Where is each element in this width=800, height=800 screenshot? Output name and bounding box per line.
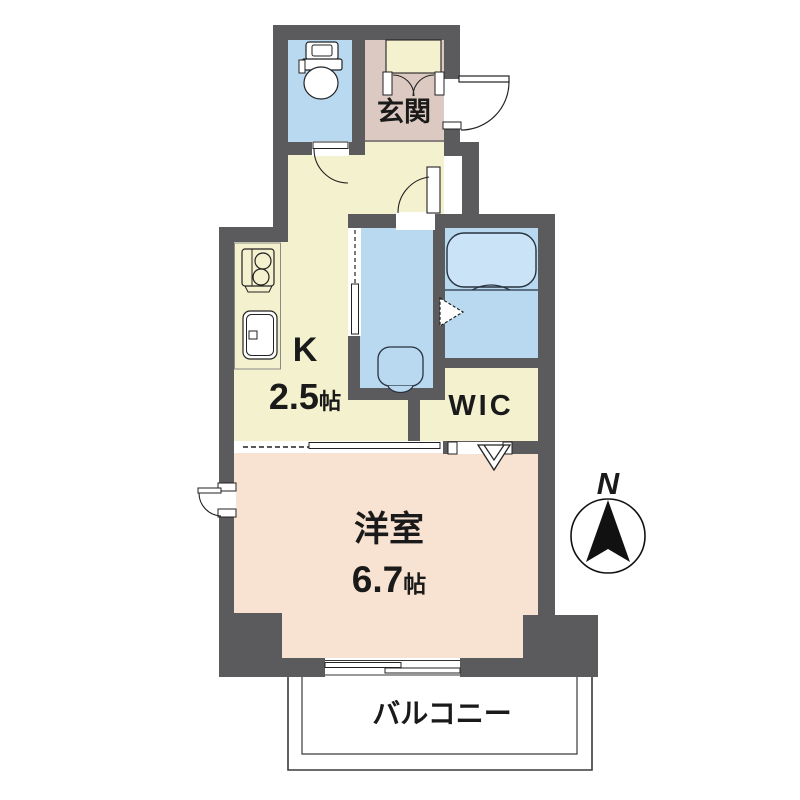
compass-icon (571, 499, 645, 573)
kitchen-area-value: 2.5 (269, 376, 319, 417)
wall (219, 227, 288, 242)
wall (282, 658, 523, 677)
room-bathroom (445, 228, 538, 358)
western-room-area-unit: 帖 (403, 571, 426, 597)
wall (219, 242, 234, 613)
room-washroom (360, 228, 433, 388)
compass-north-label: N (588, 468, 628, 501)
wall (348, 214, 555, 228)
genkan-label: 玄関 (360, 98, 448, 126)
western-room-label: 洋室 (343, 512, 435, 549)
wall (273, 25, 460, 40)
wall (408, 400, 420, 442)
wall (348, 388, 445, 400)
wall (348, 214, 360, 400)
wall (444, 25, 460, 79)
kitchen-area: 2.5帖 (255, 378, 355, 416)
room-toilet (288, 40, 352, 142)
wic-label: WIC (446, 391, 516, 421)
wall (445, 358, 538, 368)
kitchen-area-unit: 帖 (319, 389, 341, 414)
wall (273, 40, 288, 242)
kitchen-label: K (280, 333, 330, 369)
wall (538, 214, 555, 615)
western-room-area: 6.7帖 (339, 561, 439, 600)
wall (523, 615, 598, 677)
balcony-label: バルコニー (362, 699, 522, 728)
sliding-partition (234, 441, 443, 453)
wall (433, 228, 445, 400)
wall (444, 142, 479, 156)
wall (444, 127, 460, 142)
wall (288, 142, 365, 155)
western-room-area-value: 6.7 (352, 559, 403, 600)
floorplan: 玄関 K 2.5帖 WIC 洋室 6.7帖 バルコニー N (0, 0, 800, 800)
entry-door (443, 76, 509, 130)
wall (443, 441, 538, 454)
wall (219, 613, 282, 677)
